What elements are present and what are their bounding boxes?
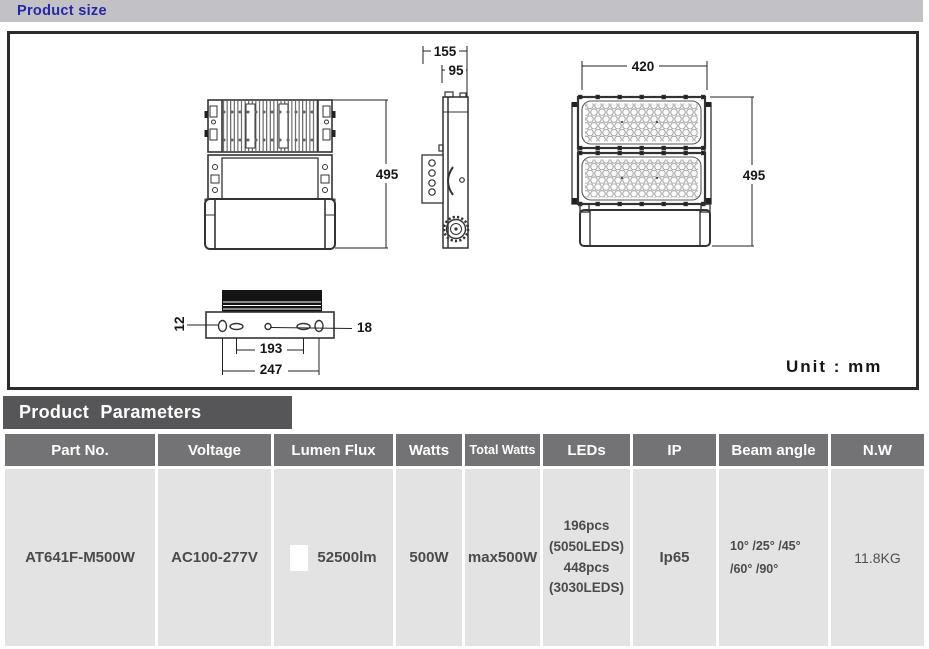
cell-nw: 11.8KG (831, 469, 924, 646)
svg-text:420: 420 (632, 59, 655, 74)
svg-text:247: 247 (260, 362, 283, 377)
product-size-title: Product size (0, 0, 923, 19)
cell-ip: Ip65 (633, 469, 716, 646)
cell-total-watts: max500W (465, 469, 540, 646)
col-header-watts: Watts (396, 434, 462, 466)
front-view (572, 95, 712, 246)
color-swatch (290, 545, 308, 571)
cell-leds: 196pcs (5050LEDS) 448pcs (3030LEDS) (543, 469, 630, 646)
svg-text:495: 495 (376, 167, 399, 182)
cell-part-no: AT641F-M500W (5, 469, 155, 646)
side-view (422, 92, 468, 248)
product-parameters-header: Product Parameters (3, 396, 292, 429)
col-header-part-no: Part No. (5, 434, 155, 466)
bottom-view (206, 290, 334, 338)
product-size-header: Product size (0, 0, 923, 22)
cell-watts: 500W (396, 469, 462, 646)
dim-front-width: 420 (582, 57, 707, 90)
drawing-panel: 495 155 95 (7, 31, 919, 390)
table-data-row: AT641F-M500W AC100-277V 52500lm 500W max… (5, 469, 924, 646)
svg-text:155: 155 (434, 44, 457, 59)
dim-front-height: 495 (710, 97, 768, 246)
col-header-beam-angle: Beam angle (719, 434, 828, 466)
table-header-row: Part No. Voltage Lumen Flux Watts Total … (5, 434, 924, 466)
product-parameters-title: Product Parameters (3, 402, 201, 423)
svg-text:95: 95 (448, 63, 464, 78)
unit-label: Unit : mm (786, 357, 882, 376)
cell-lumen-flux: 52500lm (274, 469, 393, 646)
cell-beam-angle: 10° /25° /45° /60° /90° (719, 469, 828, 646)
col-header-lumen-flux: Lumen Flux (274, 434, 393, 466)
back-view (205, 100, 336, 249)
col-header-nw: N.W (831, 434, 924, 466)
svg-text:495: 495 (743, 168, 766, 183)
col-header-voltage: Voltage (158, 434, 271, 466)
technical-drawing: 495 155 95 (10, 34, 916, 387)
parameters-table: Part No. Voltage Lumen Flux Watts Total … (5, 434, 924, 646)
col-header-ip: IP (633, 434, 716, 466)
dim-side-depths: 155 95 (423, 42, 467, 97)
dim-slot-width: 12 (172, 316, 187, 331)
cell-voltage: AC100-277V (158, 469, 271, 646)
col-header-total-watts: Total Watts (465, 434, 540, 466)
svg-text:193: 193 (260, 341, 283, 356)
dim-back-height: 495 (332, 100, 401, 248)
col-header-leds: LEDs (543, 434, 630, 466)
dim-hole-diameter: 18 (357, 320, 373, 335)
